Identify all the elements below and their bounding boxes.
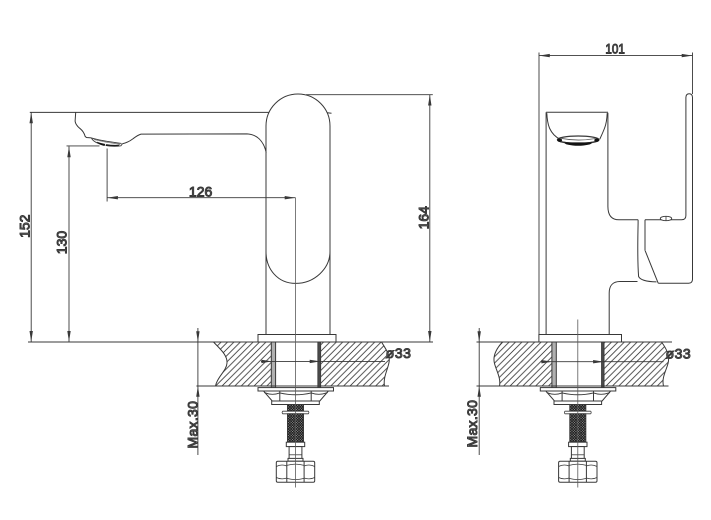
svg-text:Max.30: Max.30 <box>464 400 480 448</box>
svg-text:130: 130 <box>54 231 70 255</box>
svg-text:101: 101 <box>605 40 625 56</box>
svg-text:152: 152 <box>17 214 33 238</box>
svg-text:Max.30: Max.30 <box>184 401 200 449</box>
svg-text:126: 126 <box>189 184 213 200</box>
svg-text:ø33: ø33 <box>666 346 692 362</box>
svg-text:164: 164 <box>416 206 432 230</box>
svg-text:ø33: ø33 <box>386 345 412 361</box>
